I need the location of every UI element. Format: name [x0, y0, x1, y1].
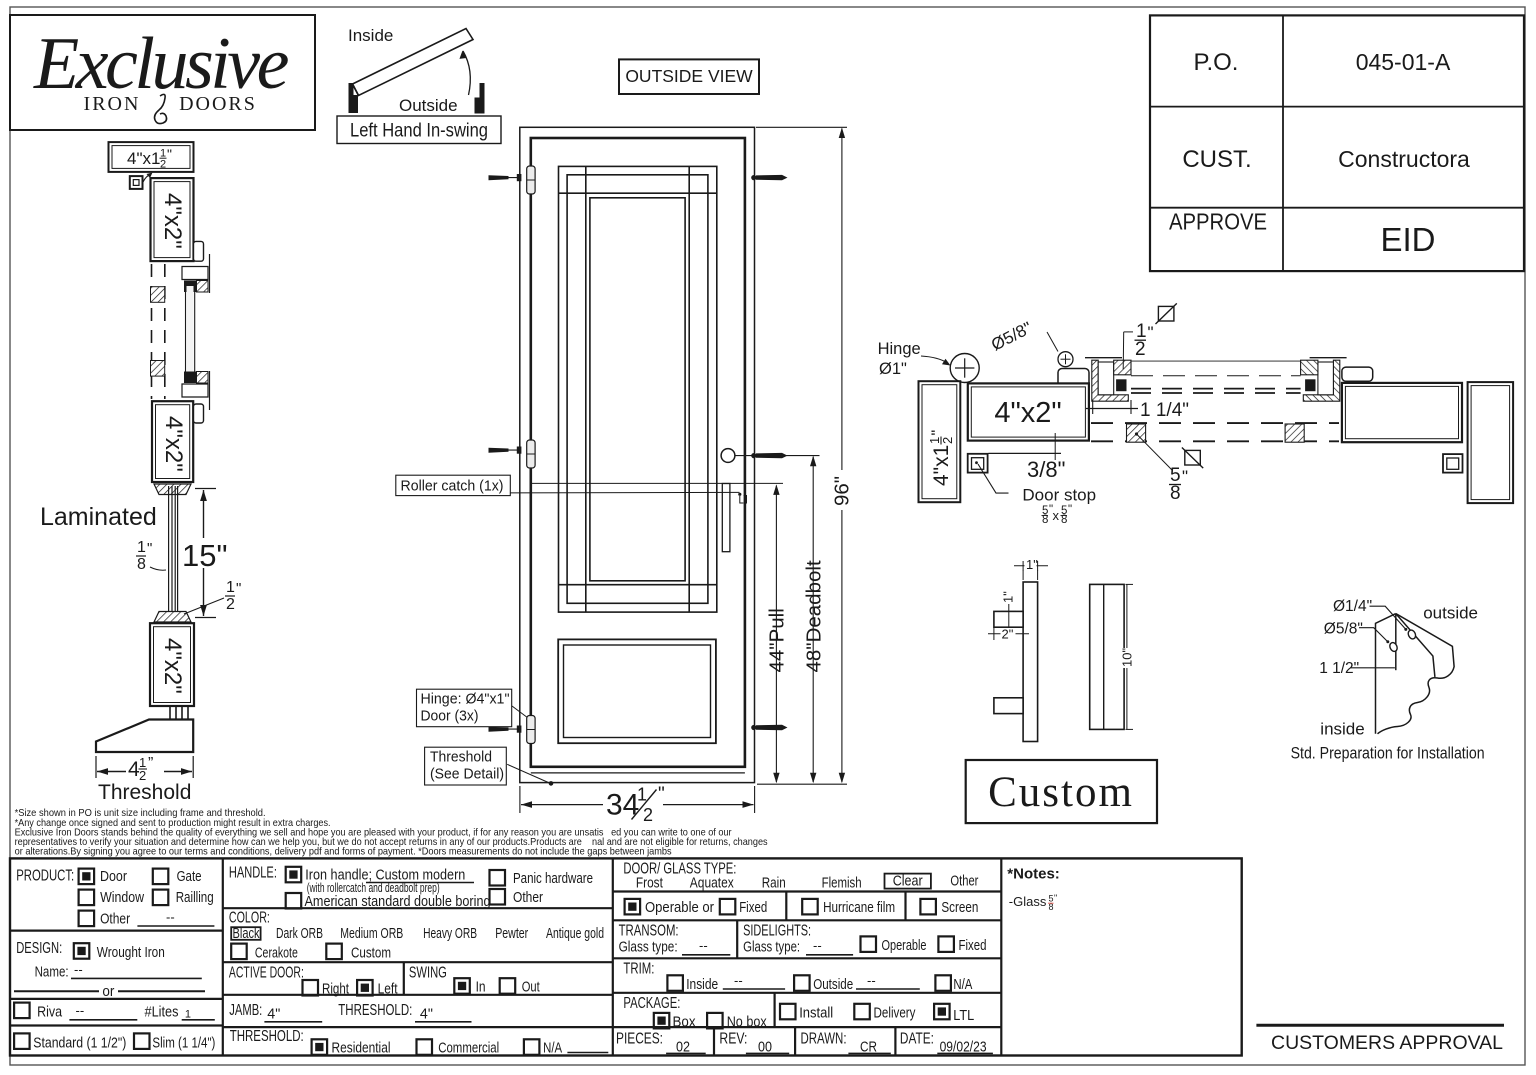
svg-text:JAMB:: JAMB: [229, 1002, 262, 1019]
svg-text:045-01-A: 045-01-A [1356, 49, 1451, 75]
svg-text:*Notes:: *Notes: [1007, 866, 1060, 883]
svg-text:4"x1: 4"x1 [127, 149, 160, 168]
svg-text:4"x2": 4"x2" [159, 193, 186, 249]
svg-text:inside: inside [1320, 720, 1364, 739]
svg-text:Operable: Operable [882, 937, 927, 954]
svg-text:4"x2": 4"x2" [159, 638, 186, 694]
svg-text:4"x2": 4"x2" [160, 416, 187, 472]
svg-text:Ø1": Ø1" [879, 360, 907, 378]
svg-text:Inside: Inside [348, 26, 393, 45]
svg-text:Left Hand In-swing: Left Hand In-swing [350, 120, 488, 142]
svg-text:OUTSIDE VIEW: OUTSIDE VIEW [625, 66, 753, 86]
svg-text:Operable or: Operable or [645, 899, 714, 916]
svg-text:": " [1054, 893, 1057, 903]
svg-text:DATE:: DATE: [900, 1031, 934, 1048]
svg-text:LTL: LTL [953, 1007, 974, 1024]
svg-text:": " [1182, 467, 1188, 486]
svg-text:--: -- [74, 962, 83, 977]
svg-text:Ø5/8": Ø5/8" [1324, 621, 1363, 638]
svg-text:Commercial: Commercial [438, 1040, 499, 1057]
svg-text:--: -- [734, 973, 743, 988]
svg-text:-Glass: -Glass [1009, 894, 1047, 909]
svg-text:4": 4" [420, 1006, 433, 1023]
svg-text:--: -- [76, 1003, 85, 1018]
svg-text:DESIGN:: DESIGN: [16, 940, 62, 957]
svg-text:Riva: Riva [37, 1004, 63, 1021]
svg-text:Roller catch (1x): Roller catch (1x) [401, 479, 504, 495]
svg-text:Ø1/4": Ø1/4" [1333, 598, 1372, 615]
svg-text:PACKAGE:: PACKAGE: [623, 995, 680, 1012]
svg-text:3/8": 3/8" [1027, 457, 1065, 482]
svg-text:4"x2": 4"x2" [994, 397, 1061, 429]
svg-text:Laminated: Laminated [40, 503, 157, 531]
svg-text:CUST.: CUST. [1182, 146, 1251, 173]
svg-text:Residential: Residential [332, 1040, 391, 1057]
svg-text:Delivery: Delivery [874, 1005, 916, 1022]
svg-text:1: 1 [226, 579, 235, 596]
svg-text:Hinge: Ø4"x1": Hinge: Ø4"x1" [421, 692, 510, 708]
svg-text:EID: EID [1380, 221, 1435, 258]
svg-text:Outside: Outside [399, 96, 458, 115]
svg-text:Other: Other [513, 889, 543, 906]
svg-text:PRODUCT:: PRODUCT: [16, 868, 74, 885]
svg-text:#Lites: #Lites [145, 1004, 179, 1021]
svg-text:4"x1: 4"x1 [930, 445, 953, 486]
svg-text:": " [147, 540, 152, 557]
svg-text:Fixed: Fixed [959, 937, 987, 954]
svg-text:TRANSOM:: TRANSOM: [619, 923, 679, 940]
svg-text:Aquatex: Aquatex [690, 875, 734, 892]
svg-text:P.O.: P.O. [1194, 49, 1239, 76]
svg-text:Door stop: Door stop [1022, 486, 1096, 505]
svg-text:": " [236, 580, 241, 597]
svg-text:2: 2 [940, 437, 955, 444]
svg-text:Hinge: Hinge [878, 340, 921, 358]
svg-text:Custom: Custom [351, 945, 391, 962]
svg-text:Screen: Screen [941, 899, 978, 916]
svg-text:DRAWN:: DRAWN: [801, 1031, 847, 1048]
svg-text:Threshold: Threshold [98, 781, 191, 804]
svg-text:": " [930, 430, 947, 436]
svg-text:x: x [1053, 508, 1060, 523]
svg-text:Std. Preparation for Installat: Std. Preparation for Installation [1291, 744, 1485, 763]
svg-text:Flemish: Flemish [822, 875, 862, 892]
svg-text:Name:: Name: [35, 964, 69, 981]
svg-text:THRESHOLD:: THRESHOLD: [230, 1028, 304, 1045]
svg-text:Rain: Rain [762, 875, 786, 892]
svg-text:44"Pull: 44"Pull [766, 608, 789, 672]
svg-text:Medium ORB: Medium ORB [340, 925, 403, 942]
svg-text:Standard (1 1/2"): Standard (1 1/2") [33, 1035, 126, 1052]
svg-text:outside: outside [1423, 604, 1478, 623]
svg-text:": " [658, 784, 665, 805]
svg-text:IRON: IRON [84, 93, 141, 115]
svg-text:1: 1 [137, 539, 146, 556]
svg-text:(See Detail): (See Detail) [430, 767, 504, 783]
svg-text:--: -- [867, 973, 876, 988]
svg-text:Gate: Gate [177, 868, 202, 885]
svg-text:Fixed: Fixed [739, 899, 767, 916]
svg-text:APPROVE: APPROVE [1169, 209, 1267, 235]
svg-text:Panic hardware: Panic hardware [513, 870, 593, 887]
svg-text:8: 8 [137, 556, 146, 573]
svg-text:DOORS: DOORS [179, 93, 257, 115]
svg-text:HANDLE:: HANDLE: [229, 865, 277, 882]
svg-text:TRIM:: TRIM: [623, 961, 654, 978]
svg-text:Window: Window [100, 889, 144, 906]
svg-text:1": 1" [1026, 557, 1038, 572]
svg-text:--: -- [166, 910, 175, 925]
svg-text:2: 2 [160, 158, 166, 170]
svg-text:Black: Black [233, 926, 261, 942]
svg-text:Out: Out [522, 979, 541, 996]
svg-text:SWING: SWING [409, 965, 447, 982]
svg-text:Heavy ORB: Heavy ORB [423, 925, 477, 942]
svg-text:48"Deadbolt: 48"Deadbolt [803, 560, 826, 672]
svg-text:96": 96" [831, 476, 854, 506]
svg-text:CUSTOMERS APPROVAL: CUSTOMERS APPROVAL [1271, 1032, 1503, 1054]
svg-text:Install: Install [799, 1005, 833, 1022]
svg-text:COLOR:: COLOR: [229, 910, 270, 927]
svg-text:Slim (1 1/4"): Slim (1 1/4") [152, 1035, 215, 1052]
svg-text:or: or [102, 983, 114, 1000]
svg-text:Railling: Railling [176, 889, 214, 906]
svg-text:In: In [476, 979, 486, 996]
svg-text:Wrought Iron: Wrought Iron [97, 944, 165, 961]
svg-text:Door (3x): Door (3x) [421, 709, 479, 725]
svg-text:4": 4" [267, 1006, 280, 1023]
svg-text:15": 15" [182, 538, 228, 573]
svg-text:Pewter: Pewter [495, 925, 528, 942]
svg-text:SIDELIGHTS:: SIDELIGHTS: [743, 923, 811, 940]
svg-text:Dark ORB: Dark ORB [276, 925, 323, 942]
svg-text:Other: Other [100, 911, 130, 928]
svg-text:": " [1068, 504, 1072, 516]
svg-text:10": 10" [1120, 648, 1135, 667]
svg-text:--: -- [699, 938, 708, 953]
svg-text:Custom: Custom [988, 769, 1134, 816]
svg-text:2": 2" [1002, 627, 1014, 642]
svg-text:Door: Door [100, 868, 127, 885]
svg-text:Inside: Inside [686, 976, 718, 993]
svg-text:1": 1" [1001, 591, 1016, 603]
svg-text:N/A: N/A [543, 1040, 562, 1057]
svg-text:": " [167, 146, 172, 162]
svg-text:1 1/4": 1 1/4" [1140, 400, 1189, 421]
svg-text:THRESHOLD:: THRESHOLD: [338, 1002, 412, 1019]
svg-text:": " [1148, 323, 1154, 342]
svg-text:2: 2 [226, 596, 235, 613]
svg-text:Hurricane film: Hurricane film [823, 899, 895, 916]
svg-text:8: 8 [1170, 483, 1181, 504]
svg-text:2: 2 [1135, 339, 1146, 360]
svg-text:Clear: Clear [893, 873, 923, 890]
svg-text:Threshold: Threshold [430, 750, 492, 766]
svg-text:ACTIVE DOOR:: ACTIVE DOOR: [229, 965, 304, 982]
svg-text:--: -- [813, 938, 822, 953]
svg-text:Outside: Outside [813, 976, 853, 993]
svg-text:1: 1 [637, 785, 647, 805]
svg-text:Cerakote: Cerakote [255, 945, 298, 962]
svg-text:Glass type:: Glass type: [619, 939, 678, 956]
svg-text:REV:: REV: [719, 1031, 747, 1048]
svg-text:Other: Other [950, 873, 978, 890]
svg-text:Constructora: Constructora [1338, 146, 1470, 172]
svg-text:N/A: N/A [953, 976, 972, 993]
svg-text:Antique gold: Antique gold [546, 925, 604, 942]
svg-text:1: 1 [185, 1009, 191, 1021]
svg-text:”: ” [148, 755, 153, 772]
svg-text:PIECES:: PIECES: [616, 1031, 663, 1048]
svg-text:Glass type:: Glass type: [743, 939, 800, 956]
svg-text:or alterations.By signing you: or alterations.By signing you agree to o… [15, 847, 672, 858]
svg-text:Frost: Frost [636, 875, 664, 892]
svg-text:2: 2 [643, 805, 653, 825]
